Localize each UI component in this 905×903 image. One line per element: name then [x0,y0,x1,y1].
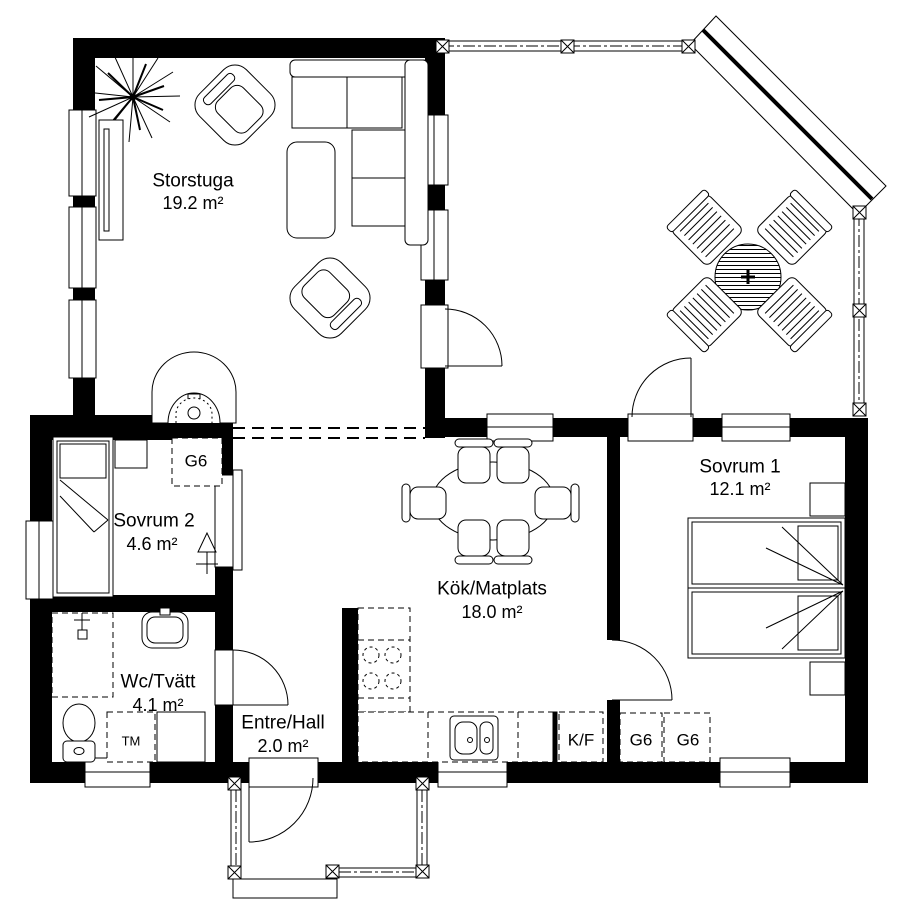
counter-divider [553,712,557,762]
dining-chair [455,439,493,483]
sideboard [99,120,123,240]
fridge-freezer-label: K/F [568,732,594,749]
room-area-wc-tvatt: 4.1 m² [132,696,183,714]
bed [688,518,845,588]
bed [53,437,113,597]
shower-area [52,613,113,697]
floor-plan: Storstuga 19.2 m² Sovrum 2 4.6 m² Kök/Ma… [0,0,905,903]
dining-chair [494,439,532,483]
door-sovrum1 [612,640,672,700]
dining-chair [535,484,579,522]
sliding-door-sovrum2 [233,470,242,570]
bedside-table [810,483,845,516]
fireplace [152,352,236,423]
room-area-entre-hall: 2.0 m² [257,737,308,755]
washing-machine-label: TM [122,735,141,748]
door-storstuga-terrace [445,309,502,366]
terrace-furniture [666,189,833,353]
floor-plan-drawing [0,0,905,903]
armchair [188,58,281,151]
room-opening-dashed [233,428,425,438]
bed [688,588,845,658]
washbasin [142,608,188,648]
dining-chair [494,520,532,564]
wardrobe-label: G6 [677,732,700,749]
wardrobe-label: G6 [185,453,208,470]
room-area-sovrum1: 12.1 m² [709,480,770,498]
door-entrance [249,778,313,842]
dryer [157,712,205,762]
toilet [63,704,95,762]
door-wc [233,650,288,705]
bedside-table [810,662,845,695]
room-label-wc-tvatt: Wc/Tvätt [121,673,196,692]
room-label-storstuga: Storstuga [152,172,233,191]
corner-sofa [287,60,428,245]
sink [450,716,498,760]
dining-chair [402,484,446,522]
porch-step [233,879,337,898]
kitchen-fixtures [358,439,710,762]
room-label-kok-matplats: Kök/Matplats [437,580,547,599]
room-label-sovrum2: Sovrum 2 [113,512,194,531]
wardrobe-label: G6 [630,732,653,749]
sovrum1-furniture [688,483,845,695]
dining-chair [455,520,493,564]
armchair [283,251,376,344]
door-sovrum1-terrace [632,358,691,417]
bedside-table [115,440,147,468]
room-label-sovrum1: Sovrum 1 [699,458,780,477]
room-area-storstuga: 19.2 m² [162,194,223,212]
room-label-entre-hall: Entre/Hall [241,714,324,733]
room-area-sovrum2: 4.6 m² [126,535,177,553]
room-area-kok-matplats: 18.0 m² [461,603,522,621]
storstuga-furniture [86,52,428,423]
